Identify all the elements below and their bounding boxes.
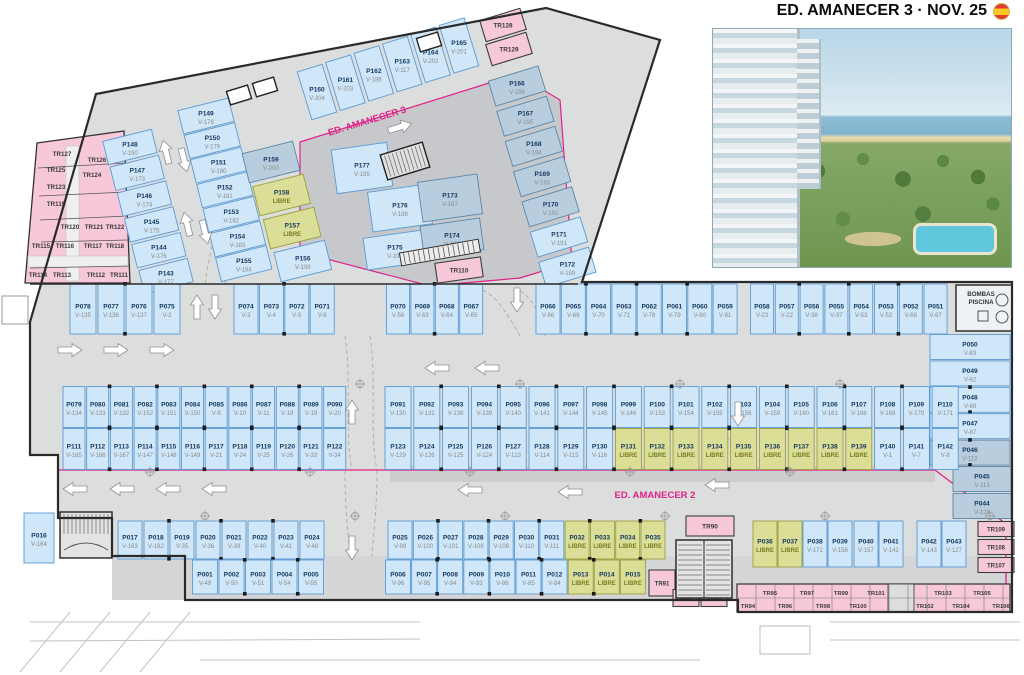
svg-text:V-67: V-67	[929, 313, 942, 319]
parking-stall: P085V-9	[205, 387, 227, 428]
svg-text:P032: P032	[569, 535, 585, 542]
parking-stall: P045V-113	[953, 467, 1011, 492]
svg-text:P035: P035	[645, 535, 661, 542]
svg-text:V-4: V-4	[267, 313, 277, 319]
svg-text:P151: P151	[211, 160, 227, 167]
parking-stall: P028V-108	[464, 521, 488, 559]
svg-text:P064: P064	[591, 304, 607, 311]
parking-stall: P066V-66	[536, 284, 560, 334]
svg-text:P167: P167	[518, 111, 534, 118]
svg-text:V-7: V-7	[912, 453, 922, 459]
svg-text:P136: P136	[765, 444, 781, 451]
svg-text:TR129: TR129	[499, 46, 519, 53]
svg-text:V-134: V-134	[66, 411, 82, 417]
parking-stall: P003V-51	[246, 560, 271, 594]
svg-text:P177: P177	[354, 163, 370, 170]
svg-text:V-3: V-3	[241, 313, 251, 319]
svg-text:P138: P138	[822, 444, 838, 451]
svg-text:P108: P108	[880, 402, 896, 409]
svg-text:P113: P113	[114, 444, 129, 451]
svg-text:V-6: V-6	[318, 313, 328, 319]
parking-stall: P049V-82	[930, 361, 1010, 386]
svg-text:P020: P020	[200, 535, 216, 542]
svg-text:P011: P011	[521, 572, 536, 579]
svg-text:V-196: V-196	[509, 90, 525, 96]
svg-text:V-195: V-195	[518, 120, 534, 126]
svg-text:V-175: V-175	[144, 228, 160, 234]
svg-text:TR112: TR112	[87, 272, 106, 279]
svg-text:TR128: TR128	[493, 22, 513, 29]
svg-text:V-109: V-109	[493, 544, 509, 550]
parking-stall: P089V-19	[300, 387, 322, 428]
svg-text:P008: P008	[442, 572, 458, 579]
svg-text:V-82: V-82	[964, 377, 977, 383]
parking-stall: P031V-111	[540, 521, 564, 559]
svg-text:V-87: V-87	[964, 430, 977, 436]
svg-text:P030: P030	[519, 535, 535, 542]
svg-text:LIBRE: LIBRE	[644, 544, 662, 550]
parking-stall: P141V-7	[903, 429, 929, 470]
svg-text:V-132: V-132	[114, 411, 130, 417]
svg-text:V-24: V-24	[234, 453, 247, 459]
parking-group-bot_tm: P025V-99P026V-100P027V-101P028V-108P029V…	[388, 519, 665, 561]
svg-text:P126: P126	[477, 444, 493, 451]
parking-stall: P097V-144	[558, 387, 584, 428]
svg-text:V-186: V-186	[366, 77, 382, 83]
svg-text:LIBRE: LIBRE	[792, 453, 810, 459]
svg-text:V-167: V-167	[114, 453, 130, 459]
svg-text:P039: P039	[832, 539, 848, 546]
parking-stall: P057V-22	[775, 284, 798, 334]
svg-text:P094: P094	[477, 402, 493, 409]
svg-text:P134: P134	[707, 444, 723, 451]
parking-stall: P065V-69	[561, 284, 585, 334]
svg-text:P084: P084	[185, 402, 201, 409]
svg-text:LIBRE: LIBRE	[850, 453, 868, 459]
svg-text:P029: P029	[493, 535, 509, 542]
parking-stall: P123V-129	[385, 429, 411, 470]
svg-text:P054: P054	[853, 304, 869, 311]
svg-text:P155: P155	[236, 258, 252, 265]
parking-stall: P081V-132	[110, 387, 132, 428]
svg-text:V-179: V-179	[204, 145, 220, 151]
svg-text:P051: P051	[928, 304, 944, 311]
parking-stall: P083V-151	[158, 387, 180, 428]
svg-text:P092: P092	[419, 402, 435, 409]
svg-text:V-19: V-19	[305, 411, 318, 417]
svg-text:LIBRE: LIBRE	[763, 453, 781, 459]
svg-text:V-93: V-93	[470, 581, 483, 587]
parking-stall: P019V-35	[170, 521, 194, 559]
svg-text:V-178: V-178	[198, 120, 214, 126]
svg-text:P026: P026	[418, 535, 434, 542]
svg-text:V-33: V-33	[305, 453, 318, 459]
parking-stall: P060V-80	[688, 284, 712, 334]
svg-text:P170: P170	[543, 201, 559, 208]
svg-text:P153: P153	[223, 209, 239, 216]
svg-text:V-149: V-149	[185, 453, 201, 459]
parking-stall: P087V-11	[253, 387, 275, 428]
svg-text:TR97: TR97	[800, 591, 814, 597]
svg-text:P139: P139	[851, 444, 867, 451]
svg-text:TR111: TR111	[110, 272, 128, 279]
svg-text:V-139: V-139	[477, 411, 493, 417]
svg-text:P107: P107	[851, 402, 867, 409]
parking-stall: P044V-128	[953, 494, 1011, 519]
parking-stall: P026V-100	[413, 521, 437, 559]
svg-text:V-136: V-136	[103, 313, 119, 319]
svg-text:P104: P104	[765, 402, 781, 409]
svg-text:V-203: V-203	[338, 87, 354, 93]
svg-text:TR121: TR121	[85, 224, 104, 231]
parking-stall: P025V-99	[388, 521, 412, 559]
svg-text:P085: P085	[208, 402, 224, 409]
parking-stall: P023V-41	[274, 521, 298, 559]
svg-text:V-157: V-157	[858, 548, 874, 554]
spain-flag-icon	[993, 3, 1010, 20]
parking-stall: P096V-141	[529, 387, 555, 428]
parking-stall: P017V-163	[118, 521, 142, 559]
parking-stall: P116V-149	[182, 429, 204, 470]
svg-text:P112: P112	[90, 444, 105, 451]
svg-text:P005: P005	[303, 572, 319, 579]
svg-text:V-117: V-117	[395, 68, 411, 74]
svg-text:P141: P141	[909, 444, 925, 451]
svg-text:P169: P169	[534, 171, 550, 178]
svg-text:P068: P068	[439, 304, 455, 311]
parking-stall: P070V-56	[387, 284, 410, 334]
svg-text:TR127: TR127	[53, 151, 72, 158]
svg-text:P118: P118	[232, 444, 247, 451]
svg-text:V-34: V-34	[329, 453, 342, 459]
site-line	[20, 612, 70, 672]
svg-text:PISCINA: PISCINA	[968, 299, 994, 306]
parking-stall: P117V-21	[205, 429, 227, 470]
svg-text:P147: P147	[129, 167, 145, 174]
svg-text:P057: P057	[779, 304, 795, 311]
building-photo	[712, 28, 1012, 268]
svg-text:V-99: V-99	[394, 544, 407, 550]
parking-stall: P086V-10	[229, 387, 251, 428]
svg-text:P140: P140	[880, 444, 896, 451]
svg-text:TR98: TR98	[816, 604, 831, 610]
parking-stall: P027V-101	[439, 521, 463, 559]
svg-text:P034: P034	[620, 535, 636, 542]
parking-stall: P022V-40	[248, 521, 272, 559]
svg-text:V-160: V-160	[793, 411, 809, 417]
parking-stall: P063V-71	[612, 284, 636, 334]
svg-text:P176: P176	[392, 203, 408, 210]
parking-stall: P034LIBRE	[616, 521, 640, 559]
svg-text:V-9: V-9	[212, 411, 222, 417]
svg-text:LIBRE: LIBRE	[283, 232, 301, 238]
svg-text:V-194: V-194	[526, 150, 542, 156]
svg-text:V-133: V-133	[90, 411, 106, 417]
parking-stall: P030V-110	[515, 521, 539, 559]
svg-text:P114: P114	[138, 444, 153, 451]
svg-text:V-5: V-5	[292, 313, 302, 319]
svg-text:V-163: V-163	[122, 544, 138, 550]
parking-stall: P041V-142	[879, 521, 903, 567]
svg-text:P152: P152	[217, 184, 233, 191]
svg-text:P168: P168	[526, 141, 542, 148]
svg-text:TR101: TR101	[867, 591, 885, 597]
svg-text:V-161: V-161	[822, 411, 838, 417]
parking-stall: P011V-85	[516, 560, 541, 594]
parking-group-bot_bl: P001V-49P002V-50P003V-51P004V-54P005V-55	[193, 558, 324, 596]
svg-text:P099: P099	[621, 402, 637, 409]
svg-text:P111: P111	[67, 444, 82, 451]
svg-text:P146: P146	[137, 193, 153, 200]
svg-text:V-63: V-63	[416, 313, 429, 319]
svg-text:V-166: V-166	[90, 453, 106, 459]
svg-text:TR118: TR118	[106, 243, 125, 250]
parking-stall: P124V-126	[414, 429, 440, 470]
plan-header: ED. AMANECER 3 · NOV. 25	[777, 2, 1010, 20]
svg-text:TR117: TR117	[84, 243, 103, 250]
svg-text:V-124: V-124	[477, 453, 493, 459]
storage-room: TR107	[978, 558, 1014, 573]
svg-text:V-69: V-69	[567, 313, 580, 319]
svg-text:V-101: V-101	[443, 544, 459, 550]
svg-text:V-64: V-64	[441, 313, 454, 319]
parking-stall: P004V-54	[272, 560, 297, 594]
svg-text:P059: P059	[717, 304, 733, 311]
parking-stall: P104V-159	[759, 387, 785, 428]
parking-stall: P113V-167	[110, 429, 132, 470]
parking-stall: P053V-52	[875, 284, 898, 334]
svg-text:V-11: V-11	[258, 411, 271, 417]
svg-text:TR120: TR120	[61, 224, 80, 231]
svg-text:P172: P172	[560, 262, 576, 269]
svg-text:P022: P022	[252, 535, 268, 542]
svg-text:LIBRE: LIBRE	[619, 544, 637, 550]
svg-text:P046: P046	[962, 447, 978, 454]
parking-stall: P061V-79	[663, 284, 687, 334]
parking-stall: P133LIBRE	[673, 429, 699, 470]
svg-text:P049: P049	[962, 368, 978, 375]
svg-text:P093: P093	[448, 402, 464, 409]
svg-text:V-25: V-25	[257, 453, 270, 459]
svg-text:P160: P160	[309, 87, 325, 94]
svg-text:V-65: V-65	[465, 313, 478, 319]
svg-text:V-68: V-68	[905, 313, 918, 319]
svg-text:P119: P119	[256, 444, 271, 451]
svg-text:P171: P171	[551, 232, 567, 239]
svg-text:P015: P015	[625, 572, 641, 579]
svg-text:P033: P033	[595, 535, 611, 542]
svg-text:LIBRE: LIBRE	[756, 548, 774, 554]
parking-stall: P101V-154	[673, 387, 699, 428]
stairwell	[676, 540, 732, 598]
svg-text:P165: P165	[451, 40, 467, 47]
svg-text:TR90: TR90	[702, 523, 718, 530]
svg-text:P149: P149	[198, 111, 214, 118]
svg-text:TR105: TR105	[973, 591, 991, 597]
svg-text:V-155: V-155	[707, 411, 723, 417]
svg-text:V-84: V-84	[548, 581, 561, 587]
svg-text:P019: P019	[174, 535, 190, 542]
parking-stall: P118V-24	[229, 429, 251, 470]
parking-stall: P005V-55	[299, 560, 324, 594]
svg-text:V-131: V-131	[419, 411, 435, 417]
svg-text:V-112: V-112	[962, 457, 978, 463]
parking-stall: P006V-96	[386, 560, 411, 594]
svg-text:V-144: V-144	[563, 411, 579, 417]
svg-text:P004: P004	[277, 572, 293, 579]
svg-text:V-116: V-116	[592, 453, 608, 459]
svg-text:V-137: V-137	[131, 313, 147, 319]
svg-text:P050: P050	[962, 342, 978, 349]
parking-stall: P136LIBRE	[759, 429, 785, 470]
svg-text:V-35: V-35	[176, 544, 189, 550]
svg-text:P066: P066	[540, 304, 556, 311]
parking-stall: P008V-94	[438, 560, 463, 594]
svg-text:P079: P079	[66, 402, 82, 409]
parking-stall: P058V-23	[751, 284, 774, 334]
svg-text:V-18: V-18	[281, 411, 294, 417]
parking-stall: P007V-95	[412, 560, 437, 594]
svg-text:V-171: V-171	[937, 411, 953, 417]
parking-group-p016: P016V-164	[24, 513, 54, 563]
svg-text:P021: P021	[226, 535, 242, 542]
photo-pool	[913, 223, 997, 255]
svg-text:V-173: V-173	[129, 177, 145, 183]
parking-stall: P139LIBRE	[846, 429, 872, 470]
parking-stall: P094V-139	[471, 387, 497, 428]
svg-text:TR124: TR124	[83, 172, 102, 179]
svg-text:V-40: V-40	[254, 544, 267, 550]
parking-stall: P140V-1	[875, 429, 901, 470]
svg-text:V-193: V-193	[534, 181, 550, 187]
svg-text:V-170: V-170	[909, 411, 925, 417]
svg-text:LIBRE: LIBRE	[598, 581, 616, 587]
svg-text:P075: P075	[159, 304, 175, 311]
svg-text:P124: P124	[419, 444, 435, 451]
svg-text:P162: P162	[366, 68, 382, 75]
svg-text:V-78: V-78	[643, 313, 656, 319]
svg-text:P080: P080	[90, 402, 106, 409]
svg-text:P007: P007	[416, 572, 432, 579]
svg-text:TR104: TR104	[952, 604, 970, 610]
svg-text:LIBRE: LIBRE	[619, 453, 637, 459]
svg-text:P036: P036	[757, 539, 773, 546]
svg-text:V-21: V-21	[210, 453, 223, 459]
svg-text:P159: P159	[263, 157, 279, 164]
parking-stall: P129V-115	[558, 429, 584, 470]
parking-stall: P106V-161	[817, 387, 843, 428]
svg-text:V-41: V-41	[280, 544, 293, 550]
parking-stall: P137LIBRE	[788, 429, 814, 470]
svg-text:P069: P069	[415, 304, 431, 311]
svg-text:P100: P100	[649, 402, 665, 409]
svg-text:V-130: V-130	[390, 411, 406, 417]
svg-text:P137: P137	[793, 444, 809, 451]
svg-text:V-115: V-115	[563, 453, 579, 459]
svg-text:V-204: V-204	[309, 96, 325, 102]
svg-text:TR95: TR95	[763, 591, 778, 597]
svg-text:V-189: V-189	[560, 271, 576, 277]
parking-stall: P009V-93	[464, 560, 489, 594]
parking-stall: P115V-148	[158, 429, 180, 470]
parking-stall: P099V-146	[615, 387, 641, 428]
svg-text:TR125: TR125	[47, 167, 66, 174]
svg-text:V-150: V-150	[185, 411, 201, 417]
svg-text:LIBRE: LIBRE	[677, 453, 695, 459]
parking-stall: P037LIBRE	[778, 521, 802, 567]
svg-text:P042: P042	[921, 539, 937, 546]
svg-text:V-100: V-100	[417, 544, 433, 550]
svg-text:P081: P081	[114, 402, 130, 409]
svg-text:V-159: V-159	[765, 411, 781, 417]
svg-text:P001: P001	[197, 572, 213, 579]
svg-text:P058: P058	[754, 304, 770, 311]
svg-text:P053: P053	[878, 304, 894, 311]
parking-stall: P032LIBRE	[565, 521, 589, 559]
svg-text:TR123: TR123	[47, 184, 66, 191]
svg-text:V-49: V-49	[199, 581, 212, 587]
storage-room: TR91	[649, 570, 675, 596]
svg-text:P074: P074	[238, 304, 254, 311]
parking-stall: P075V-2	[154, 284, 180, 334]
svg-text:LIBRE: LIBRE	[706, 453, 724, 459]
svg-text:P010: P010	[495, 572, 511, 579]
svg-text:V-123: V-123	[505, 453, 521, 459]
svg-text:V-88: V-88	[964, 404, 977, 410]
svg-text:P098: P098	[592, 402, 608, 409]
parking-stall: P107V-168	[846, 387, 872, 428]
svg-text:V-37: V-37	[830, 313, 843, 319]
svg-text:P150: P150	[205, 135, 221, 142]
svg-text:P128: P128	[534, 444, 550, 451]
parking-stall: P109V-170	[903, 387, 929, 428]
svg-text:P131: P131	[621, 444, 637, 451]
svg-text:V-79: V-79	[668, 313, 681, 319]
svg-text:V-135: V-135	[75, 313, 91, 319]
svg-text:P148: P148	[122, 142, 138, 149]
svg-text:V-182: V-182	[223, 218, 239, 224]
svg-text:V-48: V-48	[306, 544, 319, 550]
svg-text:V-125: V-125	[448, 453, 464, 459]
svg-text:V-165: V-165	[66, 453, 82, 459]
svg-text:V-174: V-174	[137, 203, 153, 209]
svg-text:P002: P002	[224, 572, 240, 579]
parking-stall: P128V-114	[529, 429, 555, 470]
site-structure	[760, 626, 810, 654]
svg-text:V-187: V-187	[442, 202, 458, 208]
svg-text:TR110: TR110	[450, 267, 469, 274]
parking-stall: P108V-169	[875, 387, 901, 428]
parking-stall: P111V-165	[63, 429, 85, 470]
svg-text:P077: P077	[103, 304, 119, 311]
svg-text:V-183: V-183	[230, 243, 246, 249]
site-structure	[2, 296, 28, 324]
parking-stall: P126V-124	[471, 429, 497, 470]
svg-text:P110: P110	[938, 402, 953, 409]
svg-text:V-145: V-145	[592, 411, 608, 417]
svg-text:P012: P012	[547, 572, 563, 579]
svg-text:P086: P086	[232, 402, 248, 409]
parking-stall: P135LIBRE	[731, 429, 757, 470]
svg-text:V-192: V-192	[543, 211, 559, 217]
parking-stall: P073V-4	[259, 284, 283, 334]
svg-text:V-22: V-22	[781, 313, 794, 319]
svg-text:V-199: V-199	[295, 265, 311, 271]
svg-text:P027: P027	[443, 535, 459, 542]
svg-text:P132: P132	[649, 444, 665, 451]
parking-stall: P039V-158	[828, 521, 852, 567]
svg-text:P145: P145	[144, 219, 160, 226]
